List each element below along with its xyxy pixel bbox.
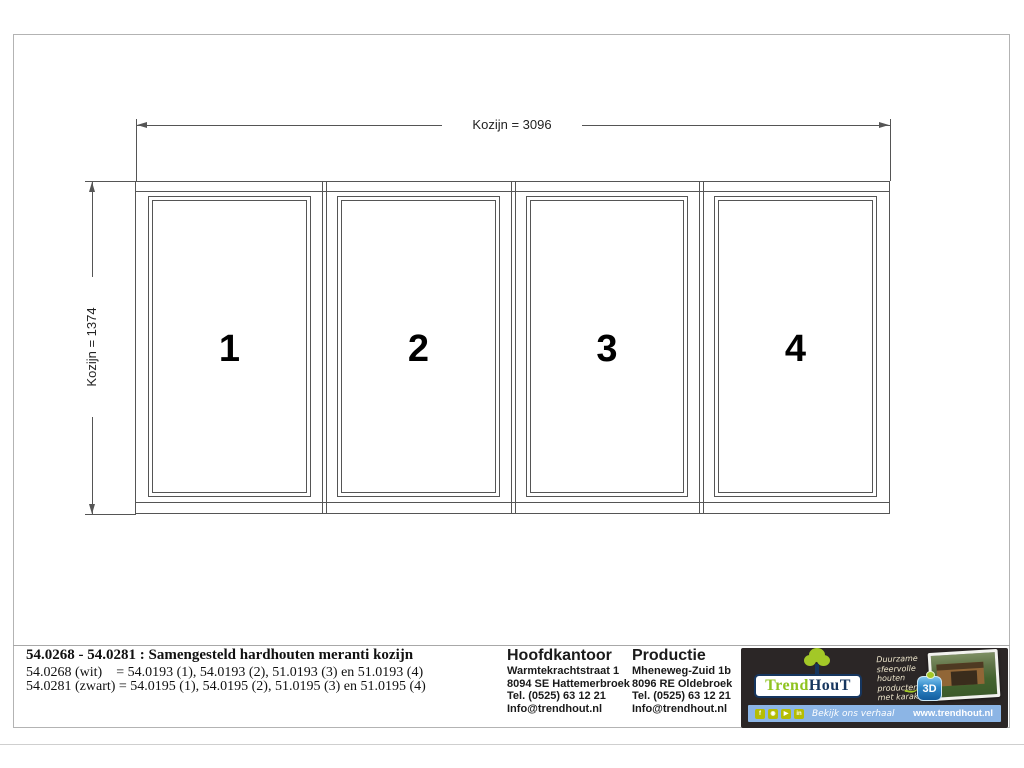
linkedin-icon: in [794, 709, 804, 719]
drawing-title: 54.0268 - 54.0281 : Samengesteld hardhou… [26, 647, 413, 664]
office-address-line: 8094 SE Hattemerbroek [507, 678, 630, 691]
office-hoofdkantoor: Hoofdkantoor Warmtekrachtstraat 1 8094 S… [507, 647, 630, 715]
dimension-arrow-down [89, 504, 95, 514]
variant-line-zwart: 54.0281 (zwart) = 54.0195 (1), 54.0195 (… [26, 679, 426, 695]
office-heading: Productie [632, 647, 732, 665]
title-block-divider [13, 645, 1010, 646]
office-productie: Productie Mheneweg-Zuid 1b 8096 RE Oldeb… [632, 647, 732, 715]
office-address-line: Mheneweg-Zuid 1b [632, 665, 732, 678]
office-email: Info@trendhout.nl [507, 703, 630, 716]
panel-number-2: 2 [324, 330, 513, 368]
social-caption: Bekijk ons verhaal [812, 709, 895, 719]
width-dimension-label: Kozijn = 3096 [442, 117, 582, 133]
dimension-extension-line [136, 119, 137, 181]
height-dimension-label: Kozijn = 1374 [84, 277, 100, 417]
youtube-icon: ▶ [781, 709, 791, 719]
frame-section-2: 2 [324, 181, 513, 514]
brand-bottom-bar: f ◉ ▶ in Bekijk ons verhaal www.trendhou… [748, 705, 1001, 722]
bottom-divider-line [0, 744, 1024, 745]
office-phone: Tel. (0525) 63 12 21 [632, 690, 732, 703]
facebook-icon: f [755, 709, 765, 719]
panel-number-4: 4 [701, 330, 890, 368]
tree-icon [926, 671, 935, 679]
dimension-arrow-right [879, 122, 889, 128]
3d-viewer-badge: 3D [917, 676, 942, 701]
tree-icon [803, 648, 831, 676]
office-address-line: Warmtekrachtstraat 1 [507, 665, 630, 678]
instagram-icon: ◉ [768, 709, 778, 719]
panel-number-1: 1 [135, 330, 324, 368]
dimension-arrow-up [89, 182, 95, 192]
dimension-extension-line [890, 119, 891, 181]
panel-number-3: 3 [513, 330, 701, 368]
logo-text-trend: Trend [765, 677, 809, 695]
dimension-arrow-left [137, 122, 147, 128]
office-address-line: 8096 RE Oldebroek [632, 678, 732, 691]
dimension-extension-line [85, 514, 136, 515]
office-heading: Hoofdkantoor [507, 647, 630, 665]
logo-text-hout: HouT [809, 677, 851, 695]
trendhout-brand-panel: TrendHouT Duurzame sfeervolle houten pro… [741, 648, 1008, 728]
website-url: www.trendhout.nl [913, 708, 993, 719]
frame-section-1: 1 [135, 181, 324, 514]
frame-section-4: 4 [701, 181, 890, 514]
frame-section-3: 3 [513, 181, 701, 514]
office-email: Info@trendhout.nl [632, 703, 732, 716]
office-phone: Tel. (0525) 63 12 21 [507, 690, 630, 703]
trendhout-logo: TrendHouT [754, 674, 862, 698]
